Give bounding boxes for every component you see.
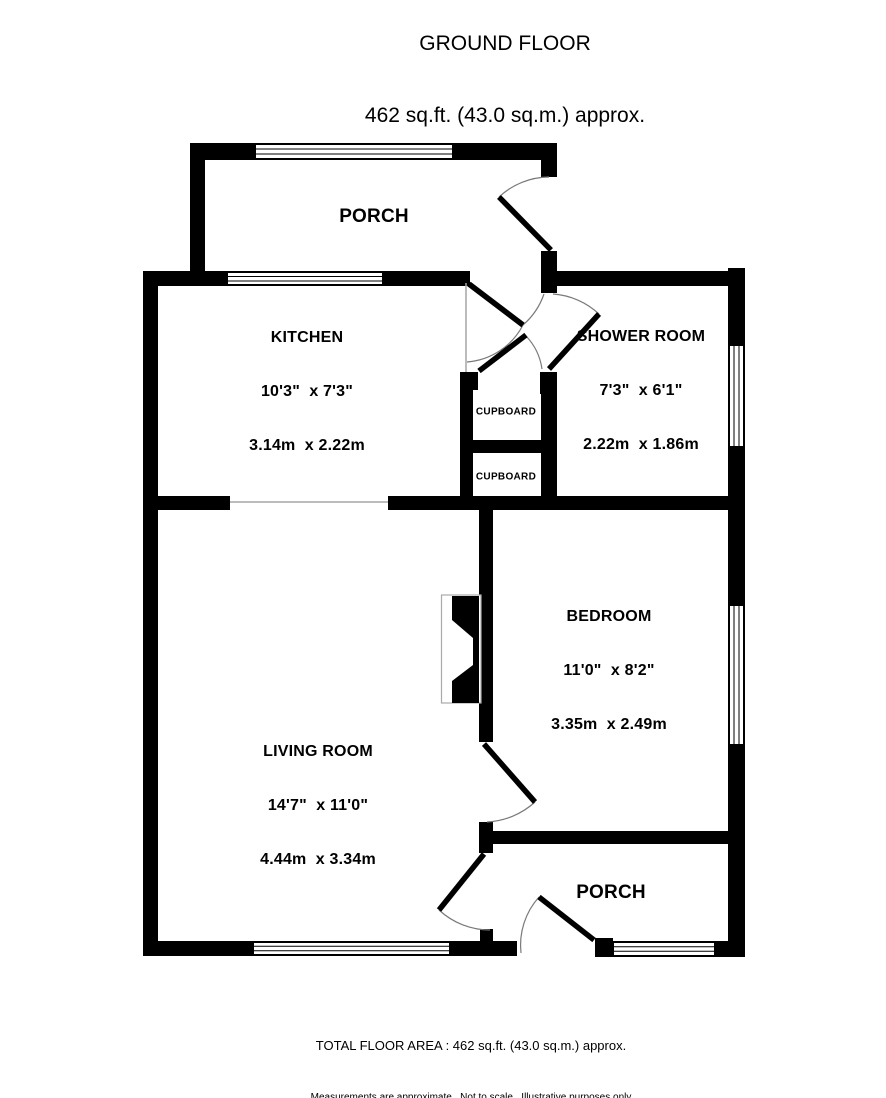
label-shower-room: SHOWER ROOM 7'3" x 6'1" 2.22m x 1.86m <box>577 292 705 490</box>
wall <box>143 941 253 956</box>
room-name: SHOWER ROOM <box>577 328 705 346</box>
wall <box>383 271 470 286</box>
door-arc <box>526 336 542 369</box>
wall <box>143 286 158 956</box>
wall <box>143 271 227 286</box>
room-size-metric: 4.44m x 3.34m <box>260 851 376 869</box>
room-size-imperial: 10'3" x 7'3" <box>249 383 365 401</box>
wall <box>190 160 205 273</box>
wall <box>728 268 745 345</box>
room-size-metric: 3.35m x 2.49m <box>551 716 667 734</box>
wall <box>453 143 557 160</box>
door-arc <box>439 910 490 930</box>
wall <box>460 440 557 453</box>
door-leaf-living-room <box>439 854 484 910</box>
label-porch-top: PORCH <box>339 207 409 227</box>
wall <box>540 372 557 394</box>
label-porch-bottom: PORCH <box>576 883 646 903</box>
wall <box>728 510 745 605</box>
wall <box>460 372 473 497</box>
wall <box>460 372 478 390</box>
label-cupboard-1: CUPBOARD <box>476 407 536 418</box>
room-size-metric: 2.22m x 1.86m <box>577 436 705 454</box>
floorplan-page: GROUND FLOOR 462 sq.ft. (43.0 sq.m.) app… <box>0 0 886 1098</box>
wall <box>595 938 613 957</box>
wall <box>479 822 493 853</box>
doors-layer <box>439 197 599 940</box>
plan-footer: TOTAL FLOOR AREA : 462 sq.ft. (43.0 sq.m… <box>311 1002 632 1098</box>
wall <box>715 941 745 957</box>
door-leaf-bedroom <box>484 744 535 802</box>
room-size-imperial: 7'3" x 6'1" <box>577 382 705 400</box>
wall <box>480 929 493 941</box>
door-arc <box>521 897 539 953</box>
total-floor-area: TOTAL FLOOR AREA : 462 sq.ft. (43.0 sq.m… <box>311 1038 632 1053</box>
window-living-room <box>253 942 450 955</box>
window-bedroom <box>729 605 744 745</box>
wall <box>541 160 557 177</box>
room-name: LIVING ROOM <box>260 743 376 761</box>
room-size-imperial: 14'7" x 11'0" <box>260 797 376 815</box>
wall <box>190 143 255 160</box>
label-kitchen: KITCHEN 10'3" x 7'3" 3.14m x 2.22m <box>249 293 365 491</box>
door-arc <box>523 294 544 325</box>
wall <box>728 745 745 831</box>
chimney-breast <box>442 595 482 703</box>
label-bedroom: BEDROOM 11'0" x 8'2" 3.35m x 2.49m <box>551 572 667 770</box>
door-arc <box>487 802 535 822</box>
door-leaf-hall <box>479 335 526 371</box>
window-kitchen <box>227 272 383 285</box>
window-shower-room <box>729 345 744 447</box>
walls-layer <box>143 143 745 957</box>
door-leaf-kitchen <box>469 284 523 325</box>
room-size-metric: 3.14m x 2.22m <box>249 437 365 455</box>
wall <box>143 496 230 510</box>
window-top-porch <box>255 144 453 159</box>
door-arc <box>499 177 549 197</box>
label-living-room: LIVING ROOM 14'7" x 11'0" 4.44m x 3.34m <box>260 707 376 905</box>
room-name: KITCHEN <box>249 329 365 347</box>
wall <box>728 831 745 956</box>
wall <box>492 831 745 844</box>
room-name: BEDROOM <box>551 608 667 626</box>
floorplan-drawing <box>0 0 886 1098</box>
wall <box>388 496 745 510</box>
label-cupboard-2: CUPBOARD <box>476 472 536 483</box>
room-size-imperial: 11'0" x 8'2" <box>551 662 667 680</box>
door-leaf-front-door <box>539 897 594 940</box>
disclaimer: Measurements are approximate. Not to sca… <box>311 1092 632 1098</box>
window-bottom-porch <box>613 942 715 956</box>
wall <box>450 941 517 956</box>
wall <box>543 271 745 286</box>
door-leaf-top-porch <box>499 197 551 250</box>
